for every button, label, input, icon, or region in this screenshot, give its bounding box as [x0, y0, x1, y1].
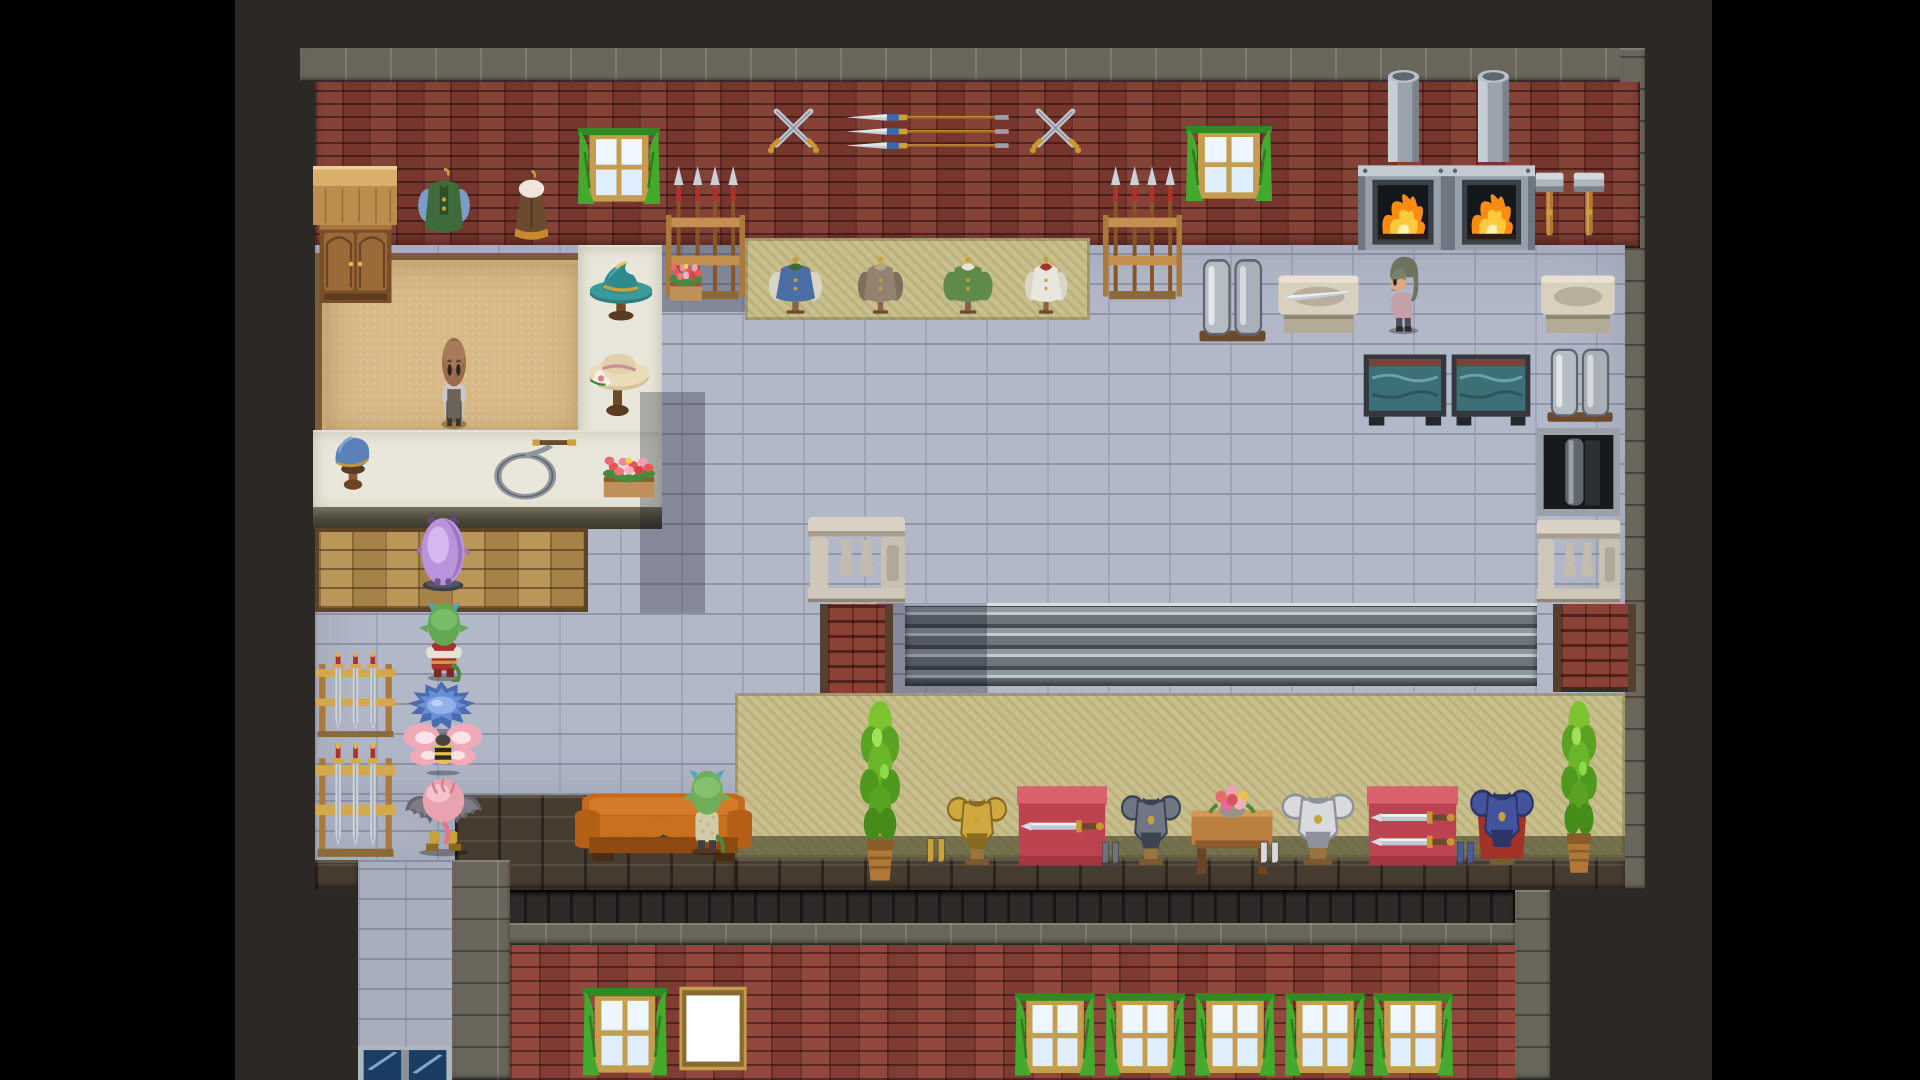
potted-plant-2	[1546, 700, 1612, 880]
npc-goblin-at-couch[interactable]	[675, 768, 739, 856]
display-table-one-sword	[1017, 781, 1107, 868]
counter-shadow-east	[640, 392, 705, 613]
building-top-trim	[300, 48, 1645, 82]
sword-rack-2	[316, 742, 395, 858]
balustrade-right	[1535, 518, 1622, 604]
crossed-swords-decor-2	[1025, 98, 1086, 158]
bottom-ledge-stub	[315, 860, 358, 890]
shutter-shadow	[877, 603, 987, 693]
bottom-trim-row	[455, 923, 1515, 945]
walkway-trim-column	[452, 860, 510, 1080]
sword-rack-1	[316, 652, 395, 738]
ingot-stand-1	[1195, 255, 1270, 345]
armor-display-white	[1278, 776, 1358, 866]
hat-stand-sun-hat	[580, 340, 655, 420]
furnace-chimney-2	[1475, 70, 1512, 162]
wall-spears-decor	[843, 108, 1012, 155]
flower-planter-wall	[664, 250, 708, 305]
mannequin-white-dress	[1020, 255, 1072, 315]
ingot-stand-2	[1543, 345, 1617, 425]
npc-shopkeeper-bald[interactable]	[430, 333, 478, 430]
hat-stand-blue-beret	[326, 430, 380, 495]
brick-column-center	[820, 604, 893, 698]
npc-purple-fluff-creature[interactable]	[413, 508, 473, 592]
wall-hammer-1	[1532, 170, 1567, 238]
mannequin-blue-tunic	[763, 255, 828, 315]
metal-shutter-counter	[905, 603, 1537, 686]
potted-plant-1	[843, 700, 917, 888]
window-top-left	[578, 128, 660, 208]
cabinet	[318, 225, 393, 303]
brick-column-right	[1553, 604, 1636, 692]
window-bottom-left	[583, 988, 667, 1080]
furnace-chimney-1	[1385, 70, 1422, 162]
hanging-vest-display	[410, 168, 478, 243]
game-viewport[interactable]	[0, 0, 1920, 1080]
window-bottom-4	[1285, 993, 1365, 1080]
npc-blacksmith-woman[interactable]	[1373, 250, 1434, 335]
bottom-planked-band	[455, 890, 1515, 923]
window-white-blank	[678, 985, 748, 1072]
furnace-2	[1448, 160, 1535, 250]
window-bottom-2	[1105, 993, 1185, 1080]
npc-red-clad-goblin[interactable]	[413, 600, 475, 682]
armor-display-blue-caped	[1467, 771, 1537, 866]
forge-pit	[1537, 428, 1620, 516]
furnace-1	[1358, 160, 1448, 250]
work-table-2	[1538, 270, 1618, 340]
window-bottom-3	[1195, 993, 1275, 1080]
crossed-swords-decor-1	[763, 98, 824, 158]
display-table-two-swords	[1367, 781, 1458, 868]
mannequin-green-coat	[938, 255, 998, 315]
glass-double-doors[interactable]	[358, 1046, 452, 1080]
whip-on-counter	[487, 436, 578, 505]
letterbox-right	[1712, 0, 1920, 1080]
balustrade-center	[806, 515, 907, 604]
window-top-right	[1186, 126, 1272, 205]
quench-tank-1	[1362, 353, 1448, 427]
npc-bat-winged-imp[interactable]	[400, 768, 487, 858]
mannequin-brown-robe	[853, 255, 908, 315]
wall-hammer-2	[1570, 170, 1608, 238]
work-table-with-blade	[1275, 270, 1362, 340]
armor-display-gold	[944, 780, 1010, 866]
quench-tank-2	[1450, 353, 1532, 427]
wood-counter-top	[313, 166, 397, 225]
hat-stand-teal-hat	[582, 254, 660, 324]
letterbox-left	[0, 0, 235, 1080]
bottom-right-trim-column	[1515, 890, 1550, 1080]
window-bottom-5	[1373, 993, 1453, 1080]
flower-box-counter	[594, 443, 664, 502]
armor-display-steel	[1118, 778, 1184, 866]
spear-rack-right	[1103, 166, 1182, 302]
hanging-cape-display	[505, 170, 558, 245]
counter-front-edge	[313, 507, 662, 529]
window-bottom-1	[1015, 993, 1095, 1080]
